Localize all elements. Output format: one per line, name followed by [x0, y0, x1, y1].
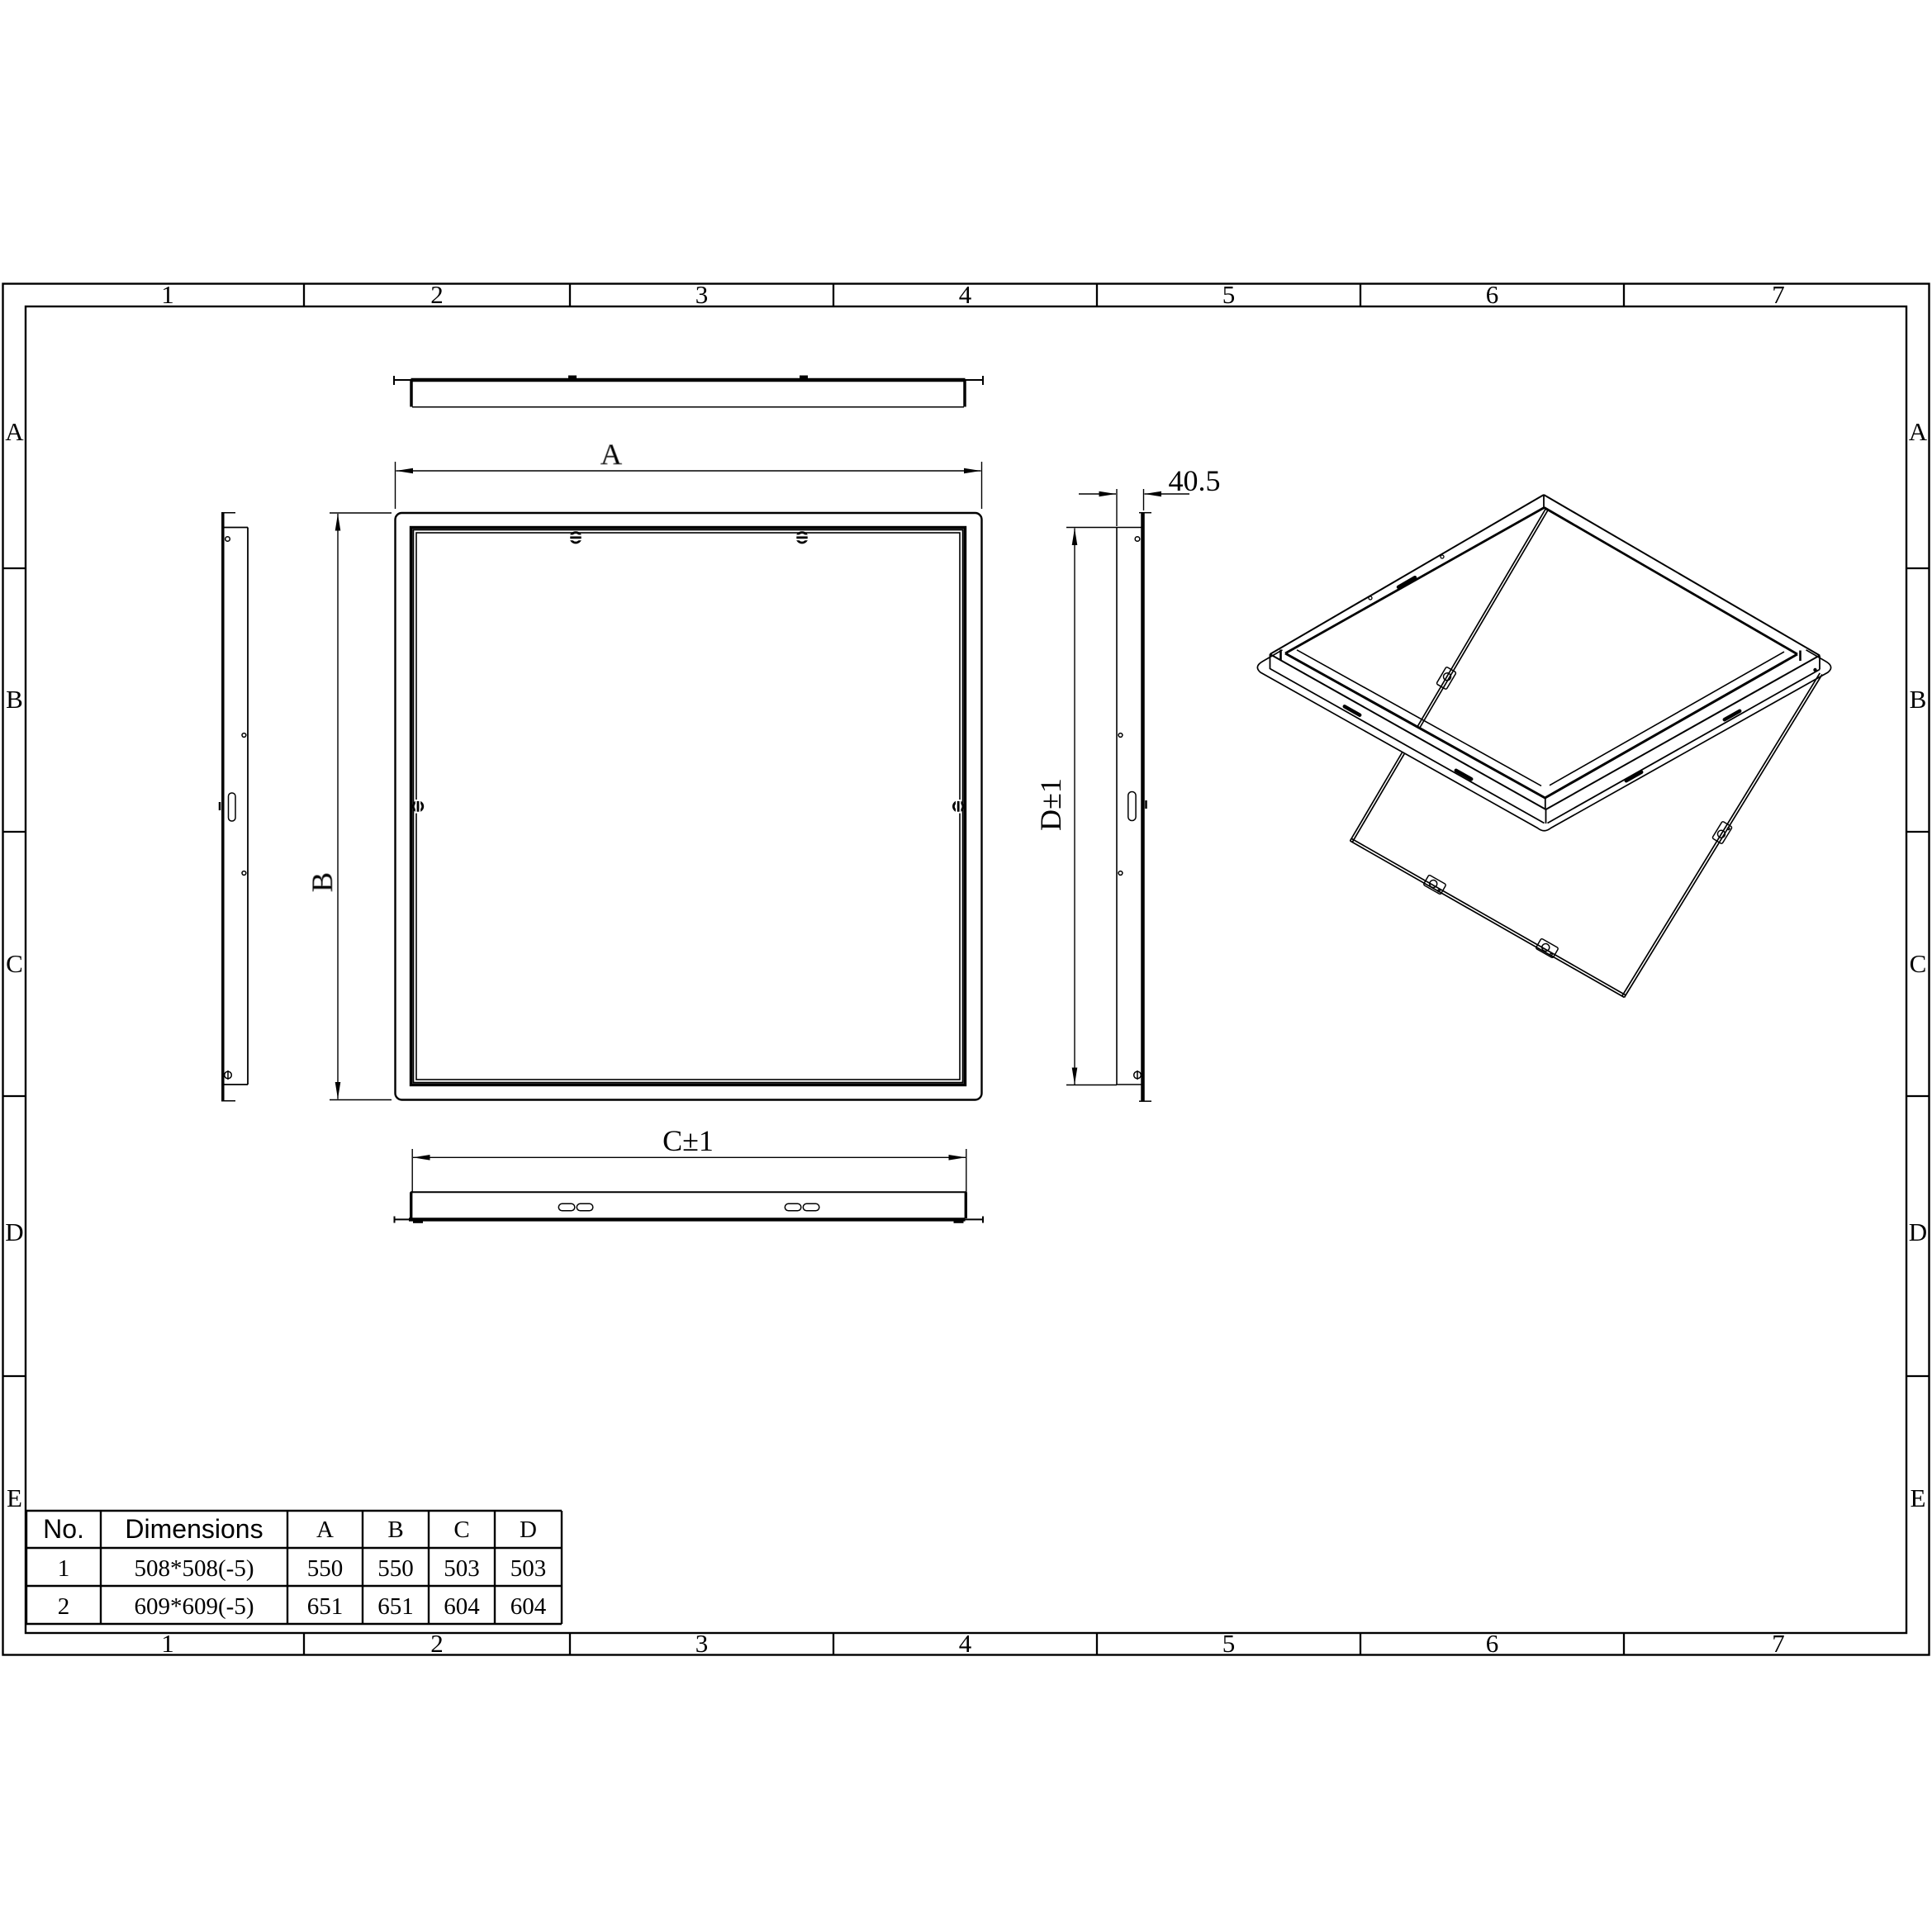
svg-text:604: 604: [444, 1593, 480, 1620]
svg-text:A: A: [316, 1517, 334, 1543]
svg-text:No.: No.: [43, 1514, 84, 1544]
svg-text:2: 2: [58, 1593, 70, 1620]
svg-text:D: D: [520, 1517, 537, 1543]
svg-text:604: 604: [510, 1593, 547, 1620]
svg-text:1: 1: [58, 1555, 70, 1582]
svg-text:Dimensions: Dimensions: [125, 1514, 263, 1544]
svg-text:D±1: D±1: [1034, 778, 1067, 831]
svg-text:B: B: [306, 872, 339, 892]
svg-text:3: 3: [695, 1629, 709, 1658]
svg-text:1: 1: [161, 1629, 174, 1658]
svg-text:550: 550: [307, 1555, 344, 1582]
svg-text:1: 1: [161, 280, 174, 309]
svg-text:3: 3: [695, 280, 709, 309]
svg-text:C±1: C±1: [662, 1124, 714, 1157]
svg-text:651: 651: [307, 1593, 344, 1620]
svg-text:503: 503: [444, 1555, 480, 1582]
svg-text:E: E: [1911, 1483, 1926, 1512]
svg-text:6: 6: [1486, 1629, 1499, 1658]
svg-text:B: B: [6, 685, 23, 714]
svg-text:503: 503: [510, 1555, 547, 1582]
svg-text:C: C: [6, 949, 23, 978]
svg-text:5: 5: [1222, 280, 1236, 309]
svg-text:7: 7: [1772, 1629, 1785, 1658]
svg-text:B: B: [387, 1517, 403, 1543]
svg-text:B: B: [1910, 685, 1927, 714]
svg-text:6: 6: [1486, 280, 1499, 309]
svg-text:A: A: [5, 417, 24, 446]
svg-text:2: 2: [430, 1629, 444, 1658]
svg-text:651: 651: [377, 1593, 414, 1620]
svg-text:40.5: 40.5: [1169, 464, 1221, 497]
svg-text:2: 2: [430, 280, 444, 309]
svg-text:A: A: [600, 438, 622, 471]
svg-text:D: D: [1909, 1218, 1927, 1246]
svg-text:4: 4: [959, 1629, 972, 1658]
svg-text:5: 5: [1222, 1629, 1236, 1658]
svg-text:C: C: [453, 1517, 469, 1543]
svg-text:D: D: [5, 1218, 23, 1246]
svg-text:550: 550: [377, 1555, 414, 1582]
svg-text:508*508(-5): 508*508(-5): [135, 1555, 254, 1582]
svg-text:4: 4: [959, 280, 972, 309]
svg-text:C: C: [1910, 949, 1927, 978]
svg-text:A: A: [1909, 417, 1928, 446]
svg-text:E: E: [7, 1483, 22, 1512]
svg-text:7: 7: [1772, 280, 1785, 309]
svg-text:609*609(-5): 609*609(-5): [135, 1593, 254, 1620]
